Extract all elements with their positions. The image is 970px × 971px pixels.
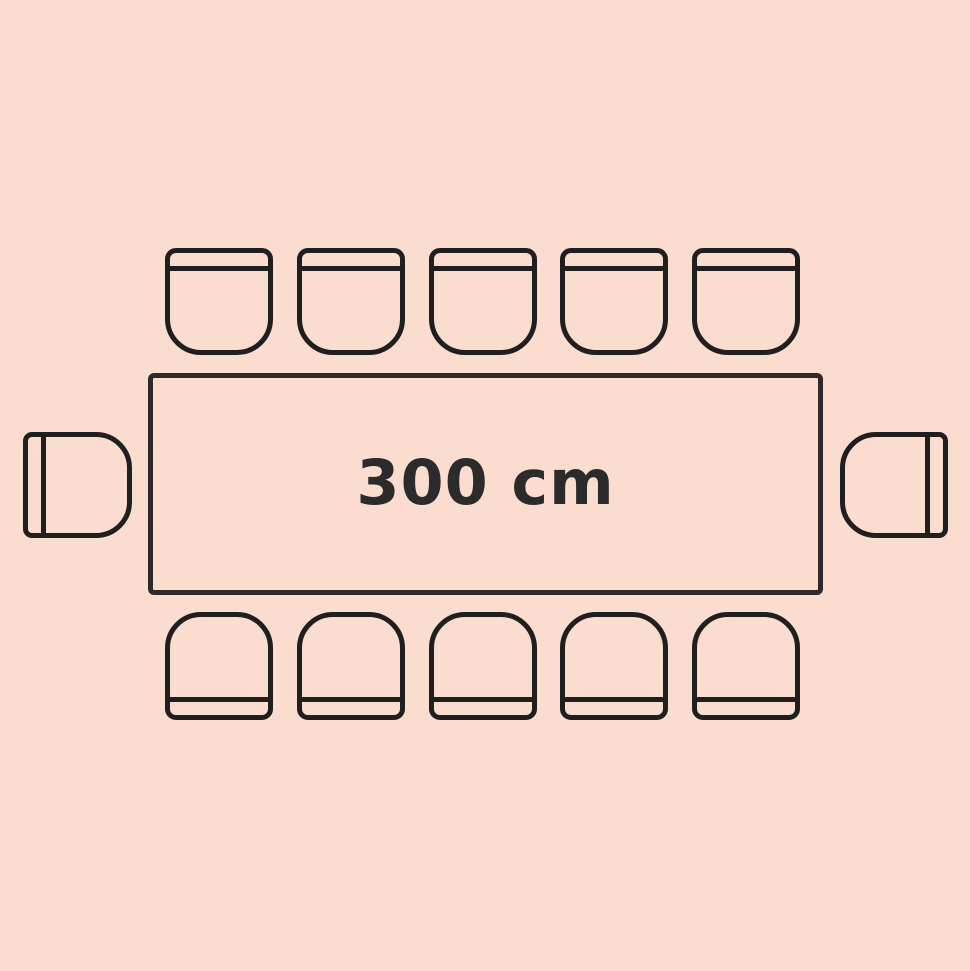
chair-bottom <box>429 612 537 720</box>
chair-top <box>560 248 668 355</box>
chair-backrest-line <box>925 436 930 534</box>
chair-top <box>692 248 800 355</box>
chair-backrest-line <box>301 266 401 271</box>
chair-backrest-line <box>301 697 401 702</box>
chair-top <box>429 248 537 355</box>
chair-backrest-line <box>41 436 46 534</box>
chair-right-end <box>840 432 948 538</box>
chair-row-bottom <box>165 612 800 720</box>
chair-backrest-line <box>696 697 796 702</box>
chair-bottom <box>297 612 405 720</box>
chair-row-top <box>165 248 800 355</box>
chair-top <box>297 248 405 355</box>
table-seating-diagram: 300 cm <box>0 0 970 971</box>
chair-bottom <box>692 612 800 720</box>
chair-backrest-line <box>433 697 533 702</box>
chair-backrest-line <box>169 697 269 702</box>
chair-backrest-line <box>564 266 664 271</box>
chair-left-end <box>23 432 132 538</box>
chair-bottom <box>560 612 668 720</box>
dining-table: 300 cm <box>148 373 823 595</box>
table-length-label: 300 cm <box>356 446 614 519</box>
chair-bottom <box>165 612 273 720</box>
chair-backrest-line <box>169 266 269 271</box>
chair-backrest-line <box>564 697 664 702</box>
chair-backrest-line <box>433 266 533 271</box>
chair-backrest-line <box>696 266 796 271</box>
chair-top <box>165 248 273 355</box>
